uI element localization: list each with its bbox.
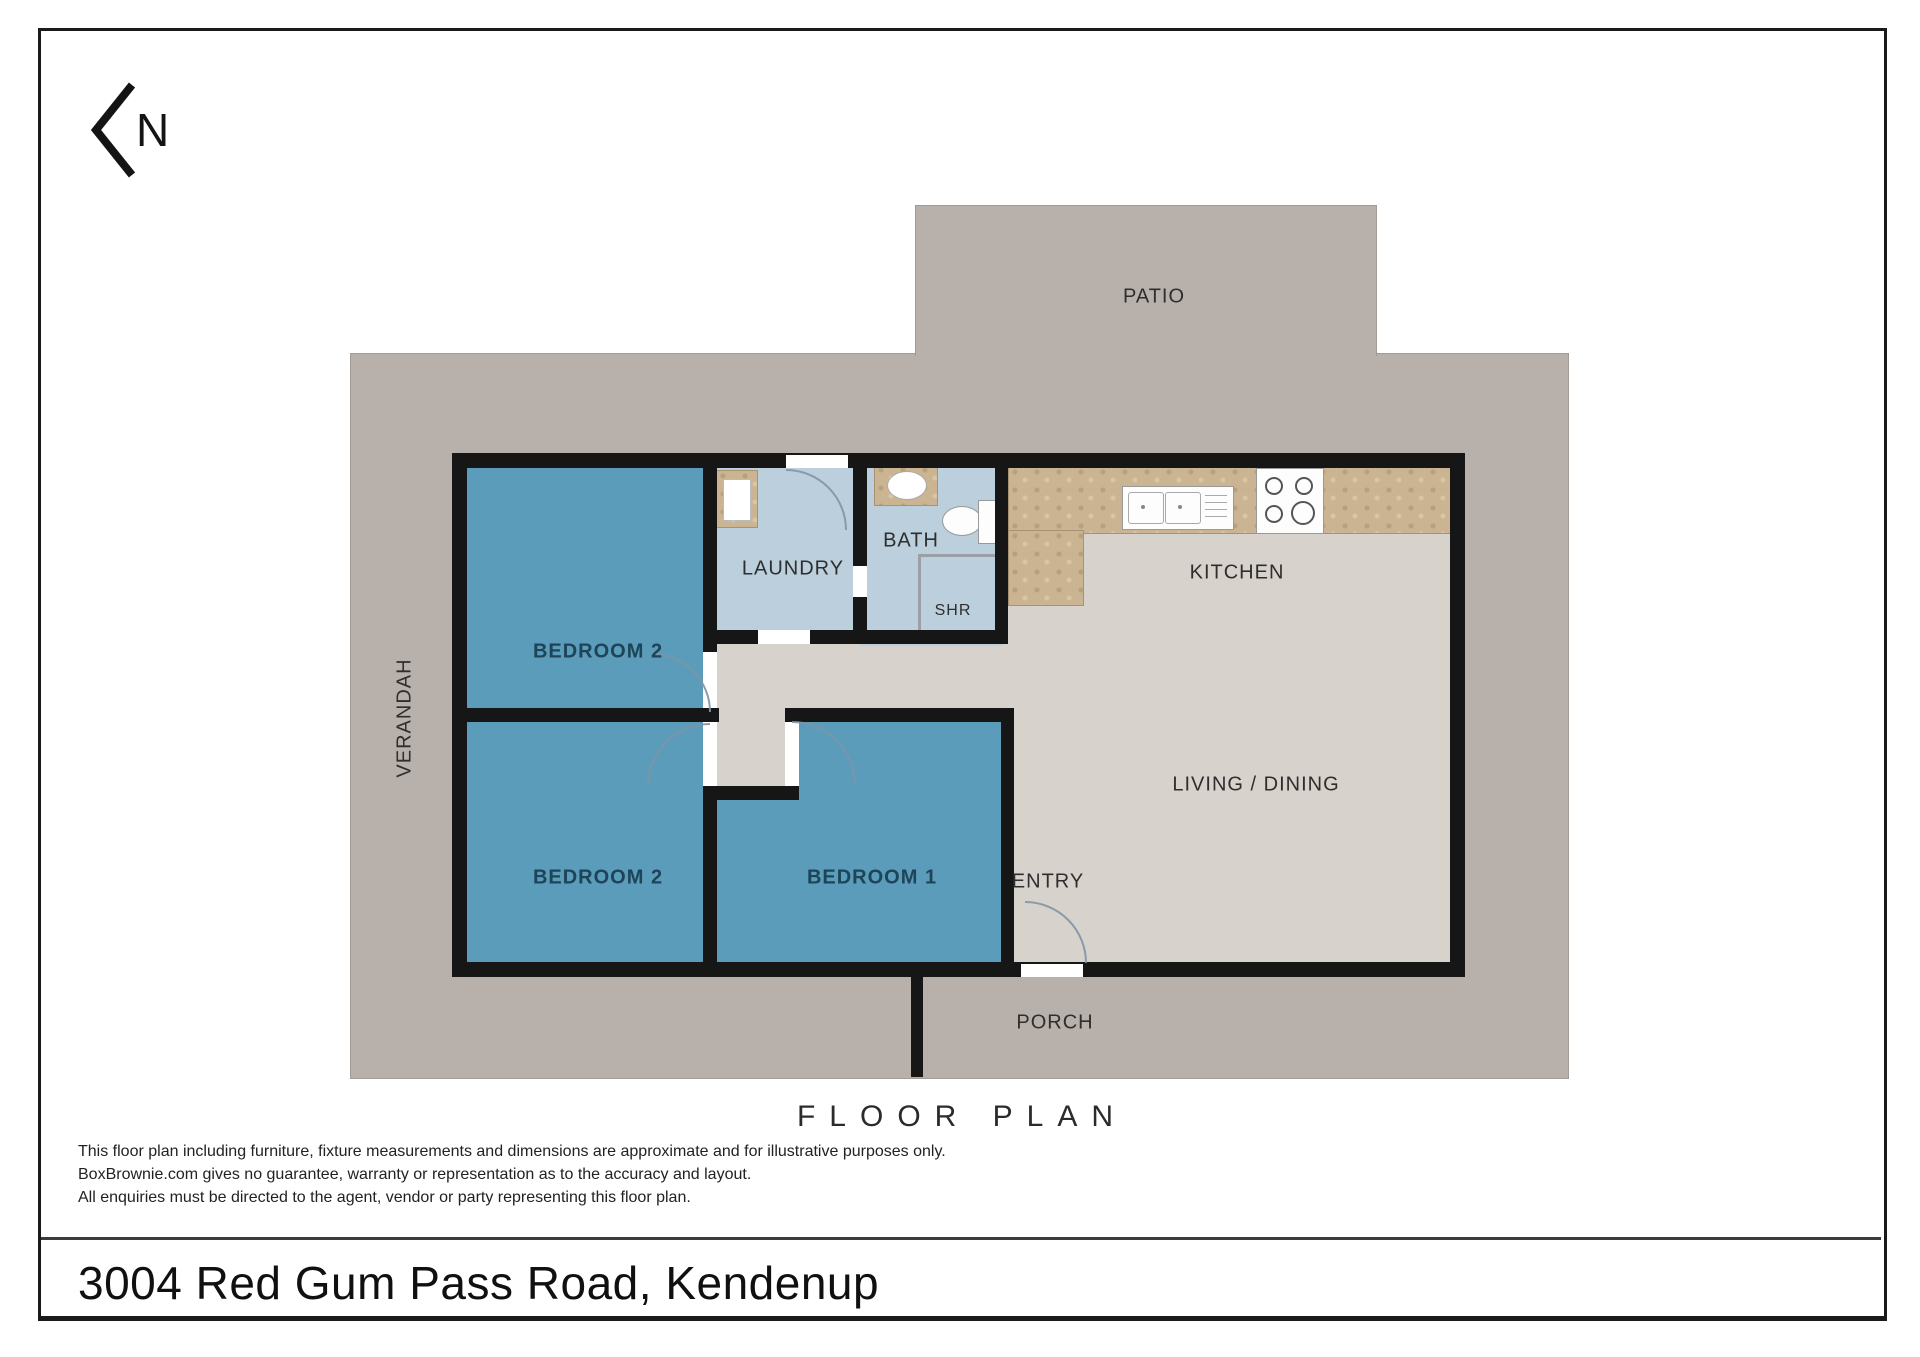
label-entry: ENTRY bbox=[1012, 871, 1084, 894]
door-swing-laundry bbox=[786, 470, 846, 530]
label-kitchen: KITCHEN bbox=[1190, 562, 1285, 585]
door-swing-bedroom1 bbox=[792, 722, 855, 785]
address-divider bbox=[41, 1237, 1881, 1240]
label-porch: PORCH bbox=[1016, 1012, 1093, 1035]
floor-plan-page: N bbox=[0, 0, 1920, 1357]
label-bedroom1: BEDROOM 1 bbox=[807, 867, 937, 890]
label-shower: SHR bbox=[935, 602, 972, 620]
page-title: FLOOR PLAN bbox=[797, 1100, 1127, 1134]
label-bedroom2-lower: BEDROOM 2 bbox=[533, 867, 663, 890]
disclaimer-text: This floor plan including furniture, fix… bbox=[78, 1140, 946, 1209]
disclaimer-line: All enquiries must be directed to the ag… bbox=[78, 1186, 946, 1209]
door-swing-bedroom2-lower bbox=[648, 724, 710, 786]
label-bedroom2-upper: BEDROOM 2 bbox=[533, 641, 663, 664]
door-swing-entry bbox=[1025, 902, 1086, 963]
property-address: 3004 Red Gum Pass Road, Kendenup bbox=[78, 1256, 879, 1310]
label-verandah: VERANDAH bbox=[394, 658, 417, 777]
label-laundry: LAUNDRY bbox=[742, 558, 844, 581]
label-bath: BATH bbox=[883, 530, 939, 553]
label-patio: PATIO bbox=[1123, 286, 1185, 309]
disclaimer-line: BoxBrownie.com gives no guarantee, warra… bbox=[78, 1163, 946, 1186]
label-living-dining: LIVING / DINING bbox=[1172, 774, 1339, 797]
disclaimer-line: This floor plan including furniture, fix… bbox=[78, 1140, 946, 1163]
